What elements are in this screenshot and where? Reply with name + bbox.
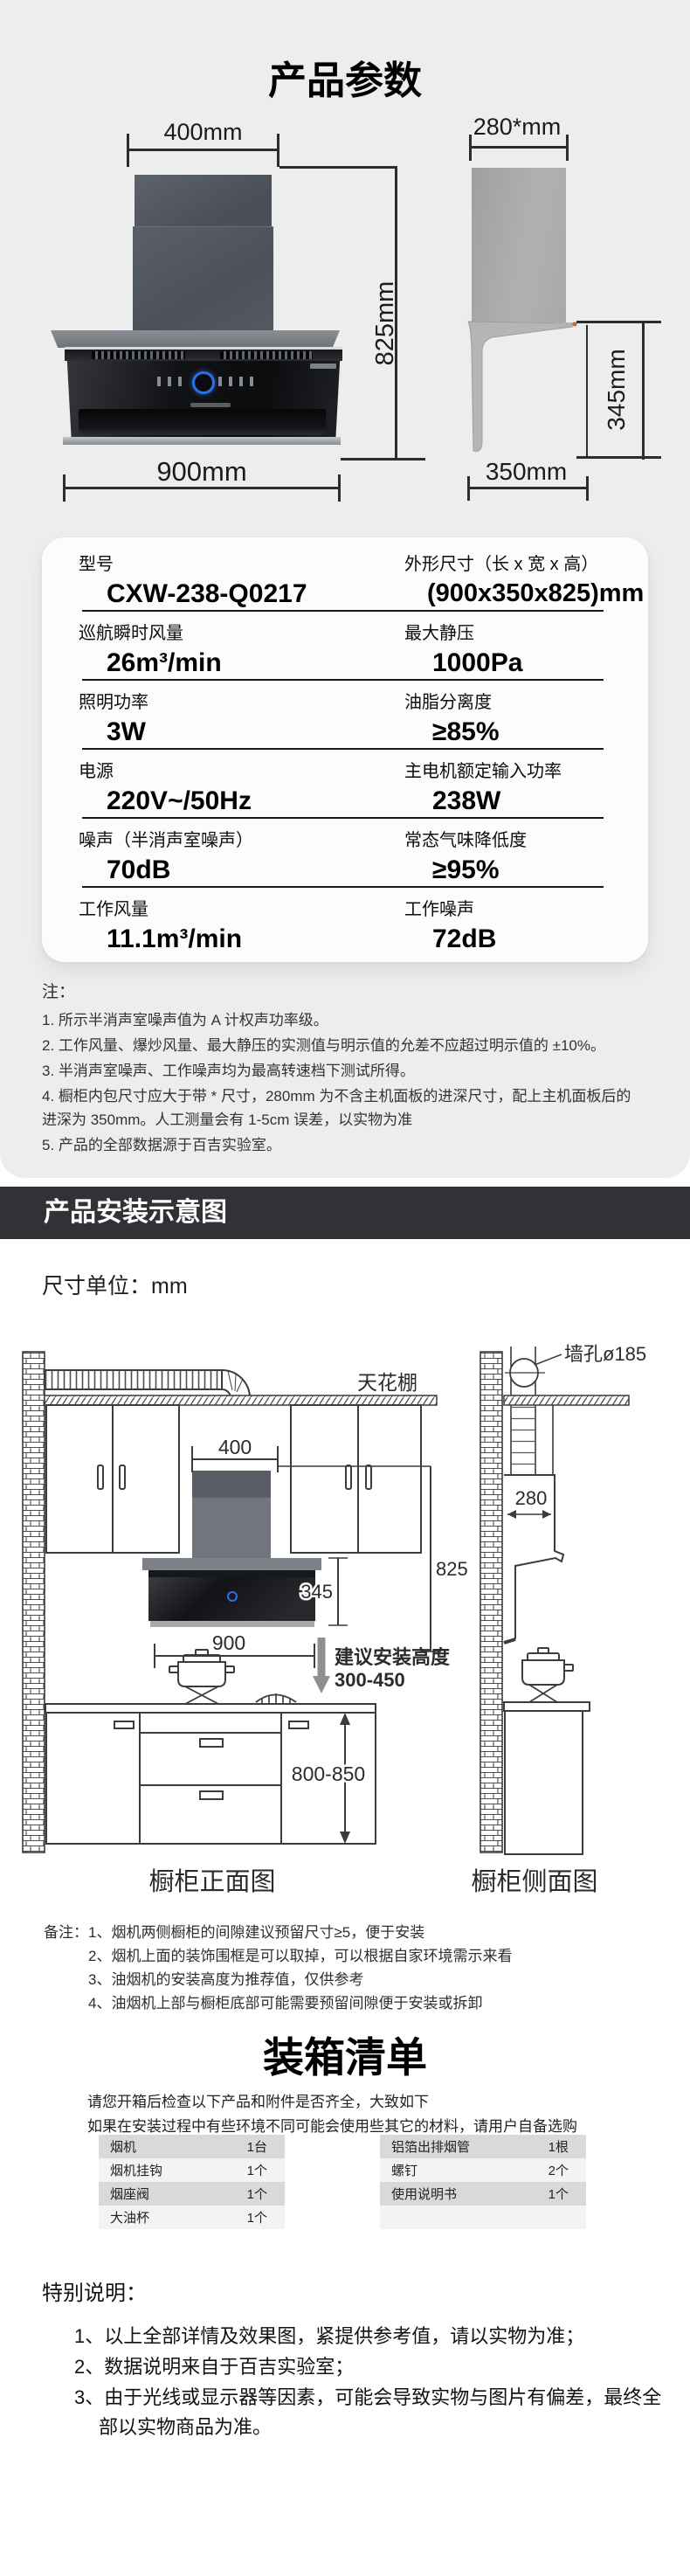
spec-row: 工作风量11.1m³/min 工作噪声72dB <box>42 888 648 957</box>
dim-label-900mm: 900mm <box>63 456 341 488</box>
unit-label: 尺寸单位：mm <box>42 1269 188 1300</box>
spec-value: ≥95% <box>432 855 527 885</box>
note-item: 2. 工作风量、爆炒风量、最大静压的实测值与明示值的允差不应超过明示值的 ±10… <box>42 1034 645 1057</box>
drawer-handle <box>200 1791 223 1799</box>
dim-label-350mm: 350mm <box>463 458 590 486</box>
spec-label: 型号 <box>79 550 307 575</box>
hood-side-profile-image <box>461 315 592 463</box>
remark-item: 1、烟机两侧橱柜的间隙建议预留尺寸≥5，便于安装 <box>88 1921 512 1944</box>
spec-label: 油脂分离度 <box>404 688 500 713</box>
spec-value: 3W <box>107 717 148 747</box>
spec-row: 照明功率3W 油脂分离度≥85% <box>42 681 648 750</box>
dim-tick <box>576 321 661 323</box>
item-qty: 2个 <box>549 2161 586 2179</box>
table-row: 烟机挂钩1个 <box>99 2158 285 2182</box>
hood-suction-opening <box>79 409 326 435</box>
hood-canopy-image <box>51 330 340 348</box>
vent-slots-left <box>92 351 185 359</box>
drawer-handle <box>200 1739 223 1747</box>
hood-drawing-canopy <box>142 1558 321 1570</box>
spec-row: 电源220V~/50Hz 主电机额定输入功率238W <box>42 750 648 819</box>
cooking-pot-side-drawing <box>522 1648 573 1702</box>
dim-900: 900 <box>212 1631 245 1654</box>
dim-ext-top <box>279 166 397 169</box>
spec-label: 噪声（半消声室噪声） <box>79 826 253 851</box>
hood-side-chimney-image <box>472 168 566 322</box>
item-qty: 1个 <box>247 2185 285 2203</box>
note-item: 5. 产品的全部数据源于百吉实验室。 <box>42 1133 645 1157</box>
front-view-caption: 橱柜正面图 <box>148 1867 275 1896</box>
spec-value: 11.1m³/min <box>107 924 242 954</box>
install-section-title: 产品安装示意图 <box>0 1187 690 1239</box>
spec-label: 主电机额定输入功率 <box>404 757 562 782</box>
install-height-label: 建议安装高度 <box>335 1646 451 1668</box>
spec-value: 220V~/50Hz <box>107 786 252 816</box>
remark-item: 3、油烟机的安装高度为推荐值，仅供参考 <box>88 1968 512 1991</box>
installation-diagram: 天花棚 400 825 345 900 建议安装高度 300-450 800-8… <box>0 1311 690 1922</box>
notes-heading: 注： <box>42 979 645 1002</box>
item-qty: 1个 <box>549 2185 586 2203</box>
cabinet-handle <box>346 1465 351 1489</box>
item-name: 螺钉 <box>380 2161 417 2179</box>
spec-row: 巡航瞬时风量26m³/min 最大静压1000Pa <box>42 612 648 681</box>
spec-value: 1000Pa <box>432 648 522 678</box>
cabinet-front-view <box>23 1352 441 1852</box>
dim-tick <box>338 474 341 502</box>
page-title: 产品参数 <box>0 49 690 105</box>
hood-control-icons-left <box>157 377 189 386</box>
table-row: 烟机1台 <box>99 2135 285 2158</box>
item-name: 使用说明书 <box>380 2185 457 2203</box>
note-item: 3. 半消声室噪声、工作噪声均为最高转速档下测试所得。 <box>42 1059 645 1083</box>
hood-drawing-glass <box>148 1577 315 1621</box>
countertop-side <box>504 1702 590 1711</box>
hood-control-icons-right <box>218 377 260 386</box>
item-name: 铝箔出排烟管 <box>380 2137 470 2156</box>
spec-label: 外形尺寸（长 x 宽 x 高） <box>404 550 644 575</box>
spec-row: 噪声（半消声室噪声）70dB 常态气味降低度≥95% <box>42 819 648 888</box>
table-row: 螺钉2个 <box>380 2158 586 2182</box>
lower-cabinet-side <box>505 1711 583 1854</box>
item-name: 烟机挂钩 <box>99 2161 162 2179</box>
item-name: 烟机 <box>99 2137 136 2156</box>
cooking-pot-drawing <box>169 1650 234 1704</box>
dim-tick <box>341 458 425 460</box>
brand-logo <box>310 364 336 369</box>
brand-text-mark <box>190 403 231 407</box>
spec-value: 72dB <box>432 924 496 954</box>
hood-chimney-image <box>135 175 272 227</box>
dim-825: 825 <box>436 1558 468 1580</box>
note-item: 4. 橱柜内包尺寸应大于带 * 尺寸，280mm 为不含主机面板的进深尺寸，配上… <box>42 1084 645 1132</box>
dim-label-345mm: 345mm <box>603 324 629 455</box>
spec-value: CXW-238-Q0217 <box>107 579 307 609</box>
notes-block: 注： 1. 所示半消声室噪声值为 A 计权声功率级。 2. 工作风量、爆炒风量、… <box>42 979 645 1159</box>
ceiling-slab <box>45 1395 437 1405</box>
table-row: 铝箔出排烟管1根 <box>380 2135 586 2158</box>
special-note-item: 3、由于光线或显示器等因素，可能会导致实物与图片有偏差，最终全部以实物商品为准。 <box>42 2383 664 2442</box>
spec-label: 工作风量 <box>79 895 242 920</box>
packing-intro: 请您开箱后检查以下产品和附件是否齐全，大致如下 如果在安装过程中有些环境不同可能… <box>87 2090 577 2139</box>
vent-slots-right <box>220 351 313 359</box>
dim-400: 400 <box>218 1436 252 1458</box>
spec-label: 最大静压 <box>404 619 522 644</box>
dim-line-400 <box>127 149 279 151</box>
hood-bottom-strip <box>63 437 341 445</box>
dim-tick <box>63 474 66 502</box>
ceiling-slab-side <box>504 1395 629 1405</box>
dim-line-280 <box>469 146 569 149</box>
side-view-caption: 橱柜侧面图 <box>471 1867 597 1896</box>
packing-table-left: 烟机1台 烟机挂钩1个 烟座阀1个 大油杯1个 <box>99 2135 285 2229</box>
wall-hole-label: 墙孔ø185 <box>564 1343 646 1365</box>
spec-label: 常态气味降低度 <box>404 826 527 851</box>
install-remarks: 备注： 1、烟机两侧橱柜的间隙建议预留尺寸≥5，便于安装 2、烟机上面的装饰围框… <box>44 1921 512 2015</box>
spec-label: 工作噪声 <box>404 895 496 920</box>
remarks-label: 备注： <box>44 1921 88 2015</box>
packing-table-right: 铝箔出排烟管1根 螺钉2个 使用说明书1个 <box>380 2135 586 2229</box>
special-note-item: 1、以上全部详情及效果图，紧提供参考值，请以实物为准； <box>42 2322 664 2351</box>
remark-item: 2、烟机上面的装饰围框是可以取掉，可以根据自家环境需示来看 <box>88 1944 512 1968</box>
packing-intro-line: 请您开箱后检查以下产品和附件是否齐全，大致如下 <box>87 2090 577 2115</box>
product-params-section: 产品参数 400mm 825mm 900mm 280*mm 345mm 350m… <box>0 0 690 1178</box>
cabinet-handle <box>98 1465 103 1489</box>
hood-chimney-lower-image <box>133 226 273 333</box>
item-name: 烟座阀 <box>99 2185 149 2203</box>
dim-line-345 <box>642 322 645 460</box>
dim-tick <box>277 134 279 167</box>
spec-label: 巡航瞬时风量 <box>79 619 222 644</box>
dim-label-825mm: 825mm <box>371 258 397 389</box>
spec-label: 照明功率 <box>79 688 148 713</box>
cabinet-handle <box>120 1465 125 1489</box>
hood-vent-strip <box>65 350 342 361</box>
dim-line-900 <box>63 487 341 489</box>
special-note-item: 2、数据说明来自于百吉实验室； <box>42 2352 664 2382</box>
note-item: 1. 所示半消声室噪声值为 A 计权声功率级。 <box>42 1008 645 1032</box>
burner-drawing <box>254 1693 298 1704</box>
table-row: 大油杯1个 <box>99 2206 285 2229</box>
spec-label: 电源 <box>79 757 252 782</box>
dim-label-400mm: 400mm <box>127 119 279 146</box>
packing-list-title: 装箱清单 <box>0 2024 690 2084</box>
item-qty: 1个 <box>247 2208 285 2226</box>
install-section-header: 产品安装示意图 <box>0 1187 690 1239</box>
dim-tick <box>566 135 569 161</box>
special-notes-heading: 特别说明： <box>42 2275 664 2306</box>
dim-label-280mm: 280*mm <box>460 114 574 141</box>
dim-tick <box>127 134 129 167</box>
dim-ext <box>586 325 588 459</box>
exhaust-duct <box>45 1370 222 1389</box>
remark-item: 4、油烟机上部与橱柜底部可能需要预留间隙便于安装或拆卸 <box>88 1991 512 2015</box>
hood-drawing-chimney <box>192 1471 271 1498</box>
spec-value: ≥85% <box>432 717 500 747</box>
dim-line-350 <box>467 487 589 489</box>
dim-tick <box>586 476 589 501</box>
cabinet-side-view <box>480 1347 629 1854</box>
spec-value: 26m³/min <box>107 648 222 678</box>
cabinet-handle <box>366 1465 371 1489</box>
item-qty: 1个 <box>247 2161 285 2179</box>
table-row: 烟座阀1个 <box>99 2182 285 2206</box>
spec-row: 型号CXW-238-Q0217 外形尺寸（长 x 宽 x 高）(900x350x… <box>42 543 648 612</box>
brick-wall-side <box>480 1352 502 1852</box>
dim-280: 280 <box>515 1487 548 1509</box>
special-notes: 特别说明： 1、以上全部详情及效果图，紧提供参考值，请以实物为准； 2、数据说明… <box>42 2275 664 2443</box>
item-qty: 1根 <box>549 2137 586 2156</box>
dim-800-850: 800-850 <box>292 1762 365 1785</box>
spec-value: 238W <box>432 786 562 816</box>
dim-tick <box>467 476 470 501</box>
brick-wall-left <box>23 1352 45 1852</box>
spec-value: (900x350x825)mm <box>427 579 644 608</box>
upper-cabinet-right <box>291 1405 421 1553</box>
drawer-handle <box>114 1721 134 1728</box>
table-row: 使用说明书1个 <box>380 2182 586 2206</box>
dim-345: 345 <box>300 1581 333 1603</box>
hood-power-button-icon <box>192 371 215 394</box>
countertop <box>45 1704 376 1713</box>
spec-value: 70dB <box>107 855 253 885</box>
drawer-handle <box>289 1721 308 1728</box>
table-row <box>380 2206 586 2229</box>
ceiling-label: 天花棚 <box>357 1371 417 1394</box>
hood-drawing-vents <box>148 1570 315 1577</box>
hood-drawing-strip <box>150 1621 314 1627</box>
item-name: 大油杯 <box>99 2208 149 2226</box>
spec-table: 型号CXW-238-Q0217 外形尺寸（长 x 宽 x 高）(900x350x… <box>42 537 648 962</box>
install-height-range: 300-450 <box>335 1669 405 1691</box>
dim-tick <box>469 135 472 161</box>
item-qty: 1台 <box>247 2137 285 2156</box>
